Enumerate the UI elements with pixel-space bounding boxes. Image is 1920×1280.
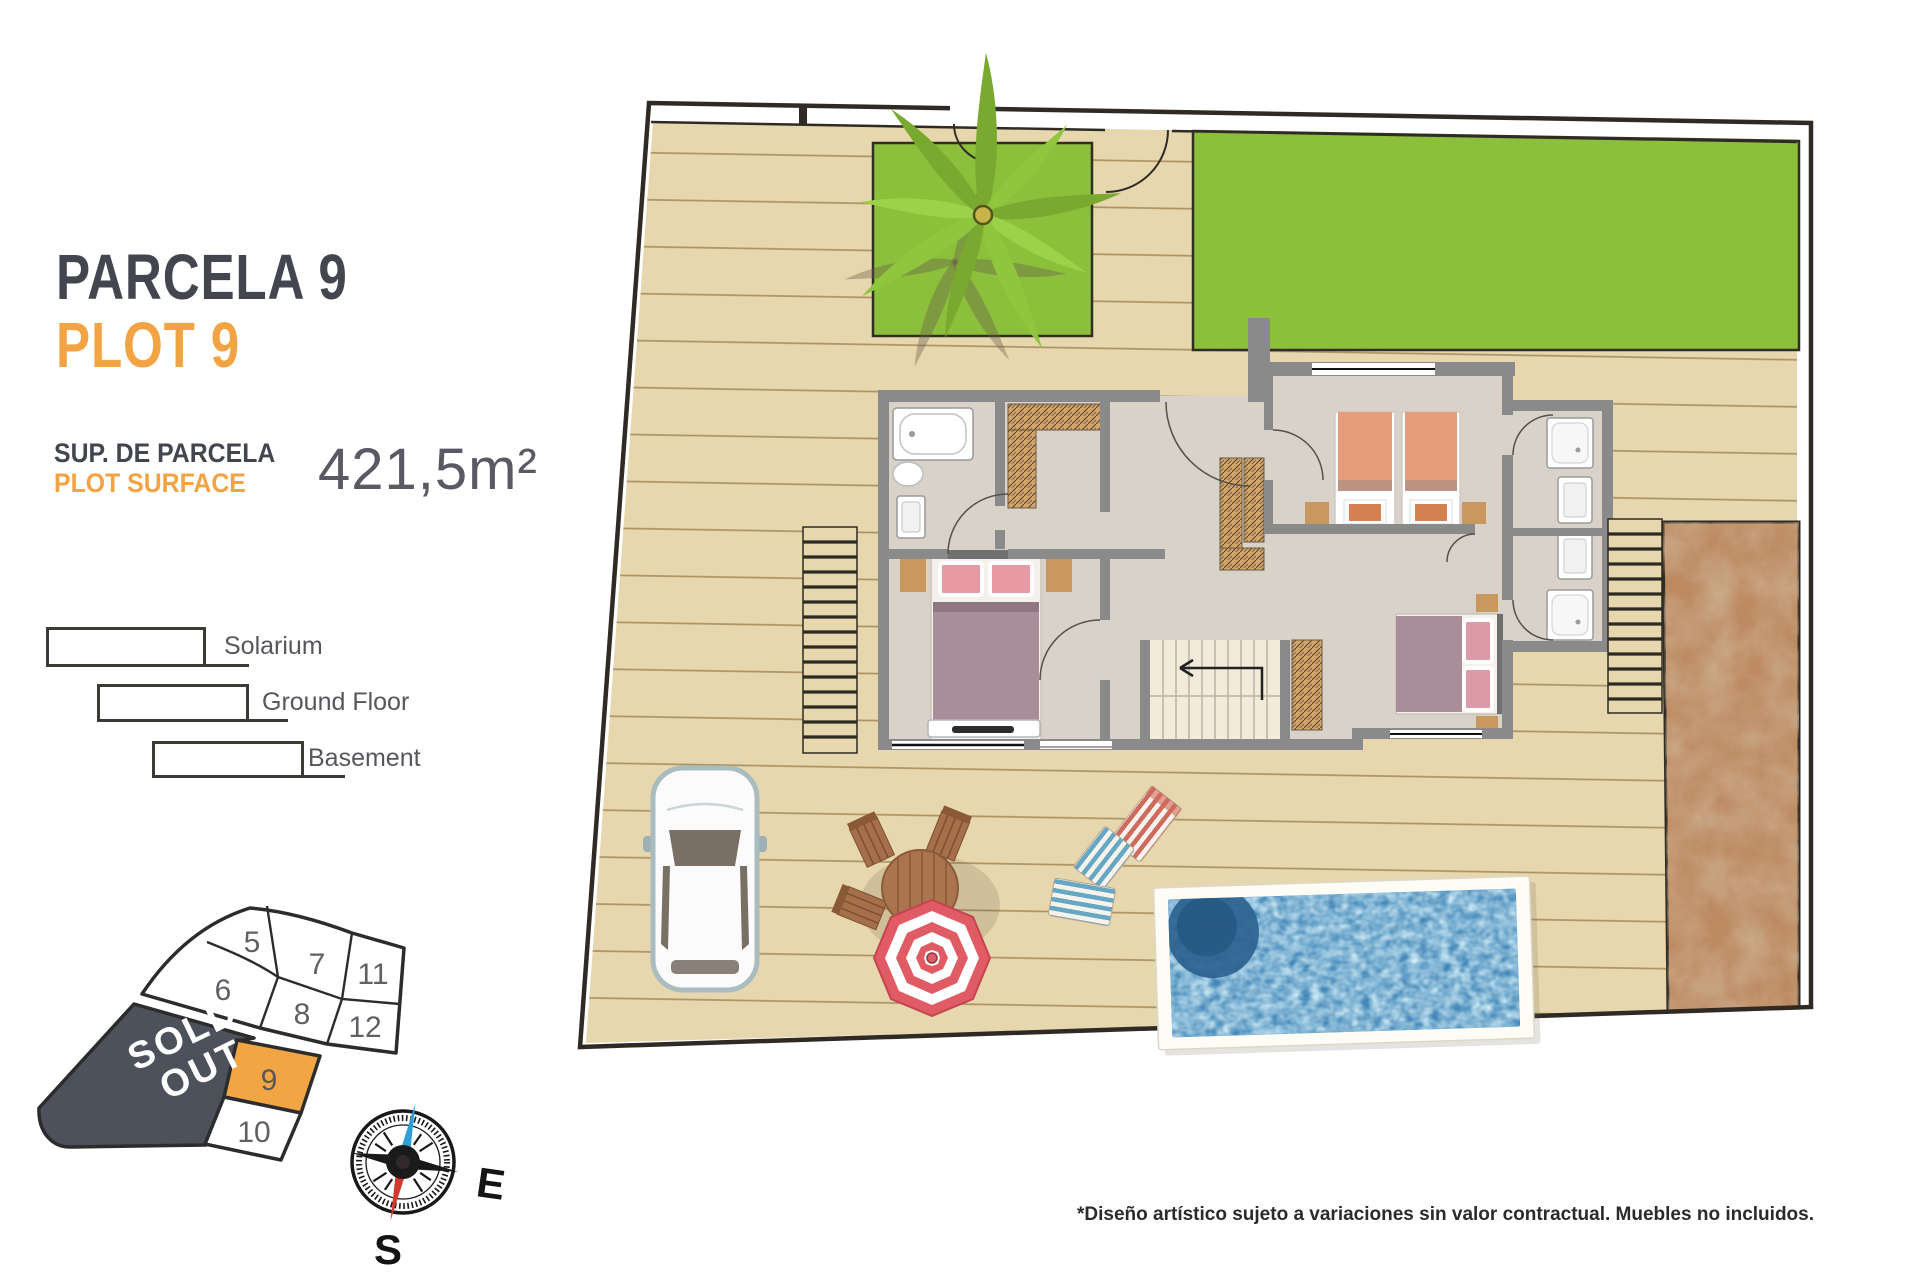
- nightstand: [1462, 502, 1486, 524]
- grass-lawn: [1193, 131, 1799, 350]
- interior-staircase: [1150, 640, 1280, 742]
- nightstand: [1476, 594, 1498, 612]
- palm-trunk-top: [974, 206, 992, 224]
- nightstand: [900, 556, 926, 592]
- car: [643, 768, 767, 990]
- nightstand: [1046, 556, 1072, 592]
- plot-brochure-page: PARCELA 9 PLOT 9 SUP. DE PARCELA PLOT SU…: [0, 0, 1920, 1280]
- bed-double-right: [1396, 594, 1503, 734]
- nightstand: [1305, 502, 1329, 524]
- tv-cabinet: [928, 720, 1040, 737]
- exterior-stairs-right: [1608, 519, 1662, 713]
- disclaimer-text: *Diseño artístico sujeto a variaciones s…: [1077, 1204, 1814, 1226]
- site-plan: [0, 0, 1920, 1280]
- toilet: [893, 462, 923, 486]
- swimming-pool: [1154, 876, 1541, 1056]
- parasol-umbrella: [874, 900, 990, 1016]
- dirt-terrain: [1663, 522, 1799, 1012]
- exterior-stairs-left: [803, 527, 857, 753]
